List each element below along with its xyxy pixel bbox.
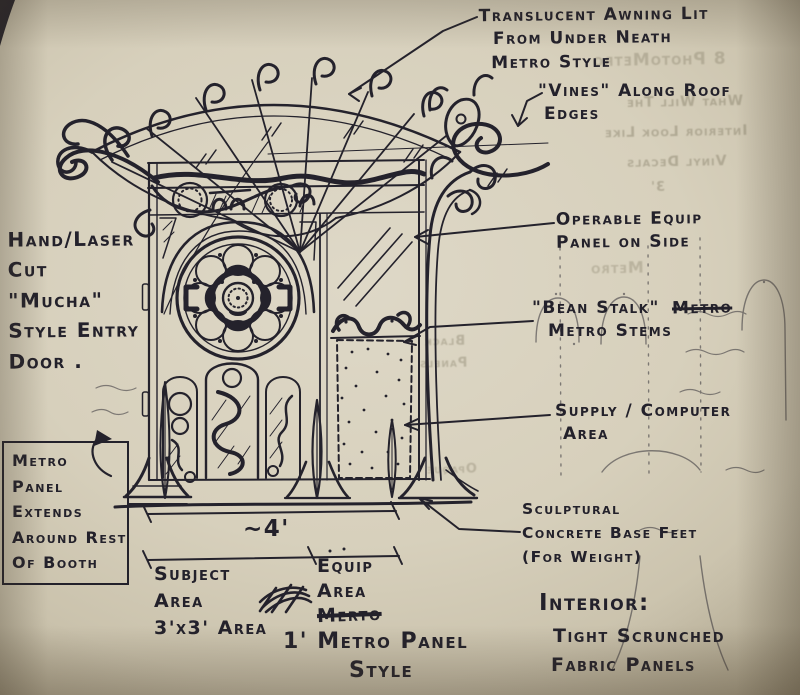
label-supply-computer-area: Supply / Computer Area xyxy=(555,400,731,447)
label-line: 1' Metro Panel xyxy=(283,628,468,657)
label-line: Equip xyxy=(317,554,382,579)
label-vines-roof-edges: "Vines" Along Roof Edges xyxy=(538,80,731,127)
label-line: Interior: xyxy=(539,586,725,622)
mucha-door-rosette xyxy=(177,237,299,359)
supply-computer-box xyxy=(331,313,420,478)
label-line: Subject xyxy=(154,561,267,588)
label-subject-area: Subject Area 3'x3' Area xyxy=(154,561,267,642)
label-line: Tight Scrunched xyxy=(539,622,725,651)
label-line: Panel on Side xyxy=(556,231,703,256)
note-box-metro-panel: Metro Panel Extends Around Rest Of Booth xyxy=(2,441,129,585)
label-line: Area xyxy=(555,423,731,446)
label-line: (For Weight) xyxy=(522,545,698,569)
label-line: "Vines" Along Roof xyxy=(538,80,731,103)
label-line: Of Booth xyxy=(12,550,122,576)
label-line: Area xyxy=(154,588,267,615)
label-line: Supply / Computer xyxy=(555,400,731,423)
label-line: Panel xyxy=(12,474,122,500)
label-line: Metro Style xyxy=(479,50,709,76)
photo-corner-mark xyxy=(0,0,15,46)
label-translucent-awning: Translucent Awning Lit From Under Neath … xyxy=(479,3,710,76)
label-line: From Under Neath xyxy=(479,26,709,52)
dimension-total-width: ~4' xyxy=(243,514,290,546)
label-line: Style Entry xyxy=(8,315,139,347)
label-line: Operable Equip xyxy=(556,207,703,232)
label-line: Translucent Awning Lit xyxy=(479,3,709,29)
label-line: Style xyxy=(283,657,468,686)
label-metro-panel-style: 1' Metro Panel Style xyxy=(283,628,468,685)
scribble-mark xyxy=(260,585,311,612)
label-line: Extends xyxy=(12,499,122,525)
photographed-sketch-page: 8 PhotoMetro What Will The Interior Look… xyxy=(0,0,800,695)
struck-word: Metro xyxy=(672,296,733,321)
label-line: "Mucha" xyxy=(8,284,139,316)
door-hinge xyxy=(143,392,149,416)
label-interior-note: Interior: Tight Scrunched Fabric Panels xyxy=(539,586,725,681)
leader-arrows xyxy=(93,17,554,532)
label-bean-stalk-stems: "Bean Stalk"Metro Metro Stems xyxy=(532,297,732,344)
label-line: Edges xyxy=(538,103,731,126)
label-line: Cut xyxy=(8,254,139,286)
label-line: 3'x3' Area xyxy=(154,615,267,642)
label-mucha-entry-door: Hand/Laser Cut "Mucha" Style Entry Door … xyxy=(7,223,139,376)
door-hinge xyxy=(143,284,149,310)
door-lower-panels xyxy=(163,364,300,479)
label-line: Fabric Panels xyxy=(539,651,725,680)
label-line: "Bean Stalk"Metro xyxy=(532,297,732,320)
label-line: Metro Stems xyxy=(532,320,732,343)
label-equip-area: Equip Area Merto xyxy=(317,554,382,628)
struck-word: Merto xyxy=(317,602,382,629)
label-line: Door . xyxy=(8,345,139,377)
label-line: Concrete Base Feet xyxy=(522,521,698,545)
mirror-panel xyxy=(338,228,412,306)
label-line: Area xyxy=(317,579,382,604)
label-line: Around Rest xyxy=(12,525,122,551)
label-line: Hand/Laser xyxy=(7,223,138,255)
label-line: Sculptural xyxy=(522,497,698,521)
label-operable-equip-panel: Operable Equip Panel on Side xyxy=(556,207,703,255)
label-line: Metro xyxy=(12,448,122,474)
label-sculptural-base-feet: Sculptural Concrete Base Feet (For Weigh… xyxy=(522,497,698,569)
